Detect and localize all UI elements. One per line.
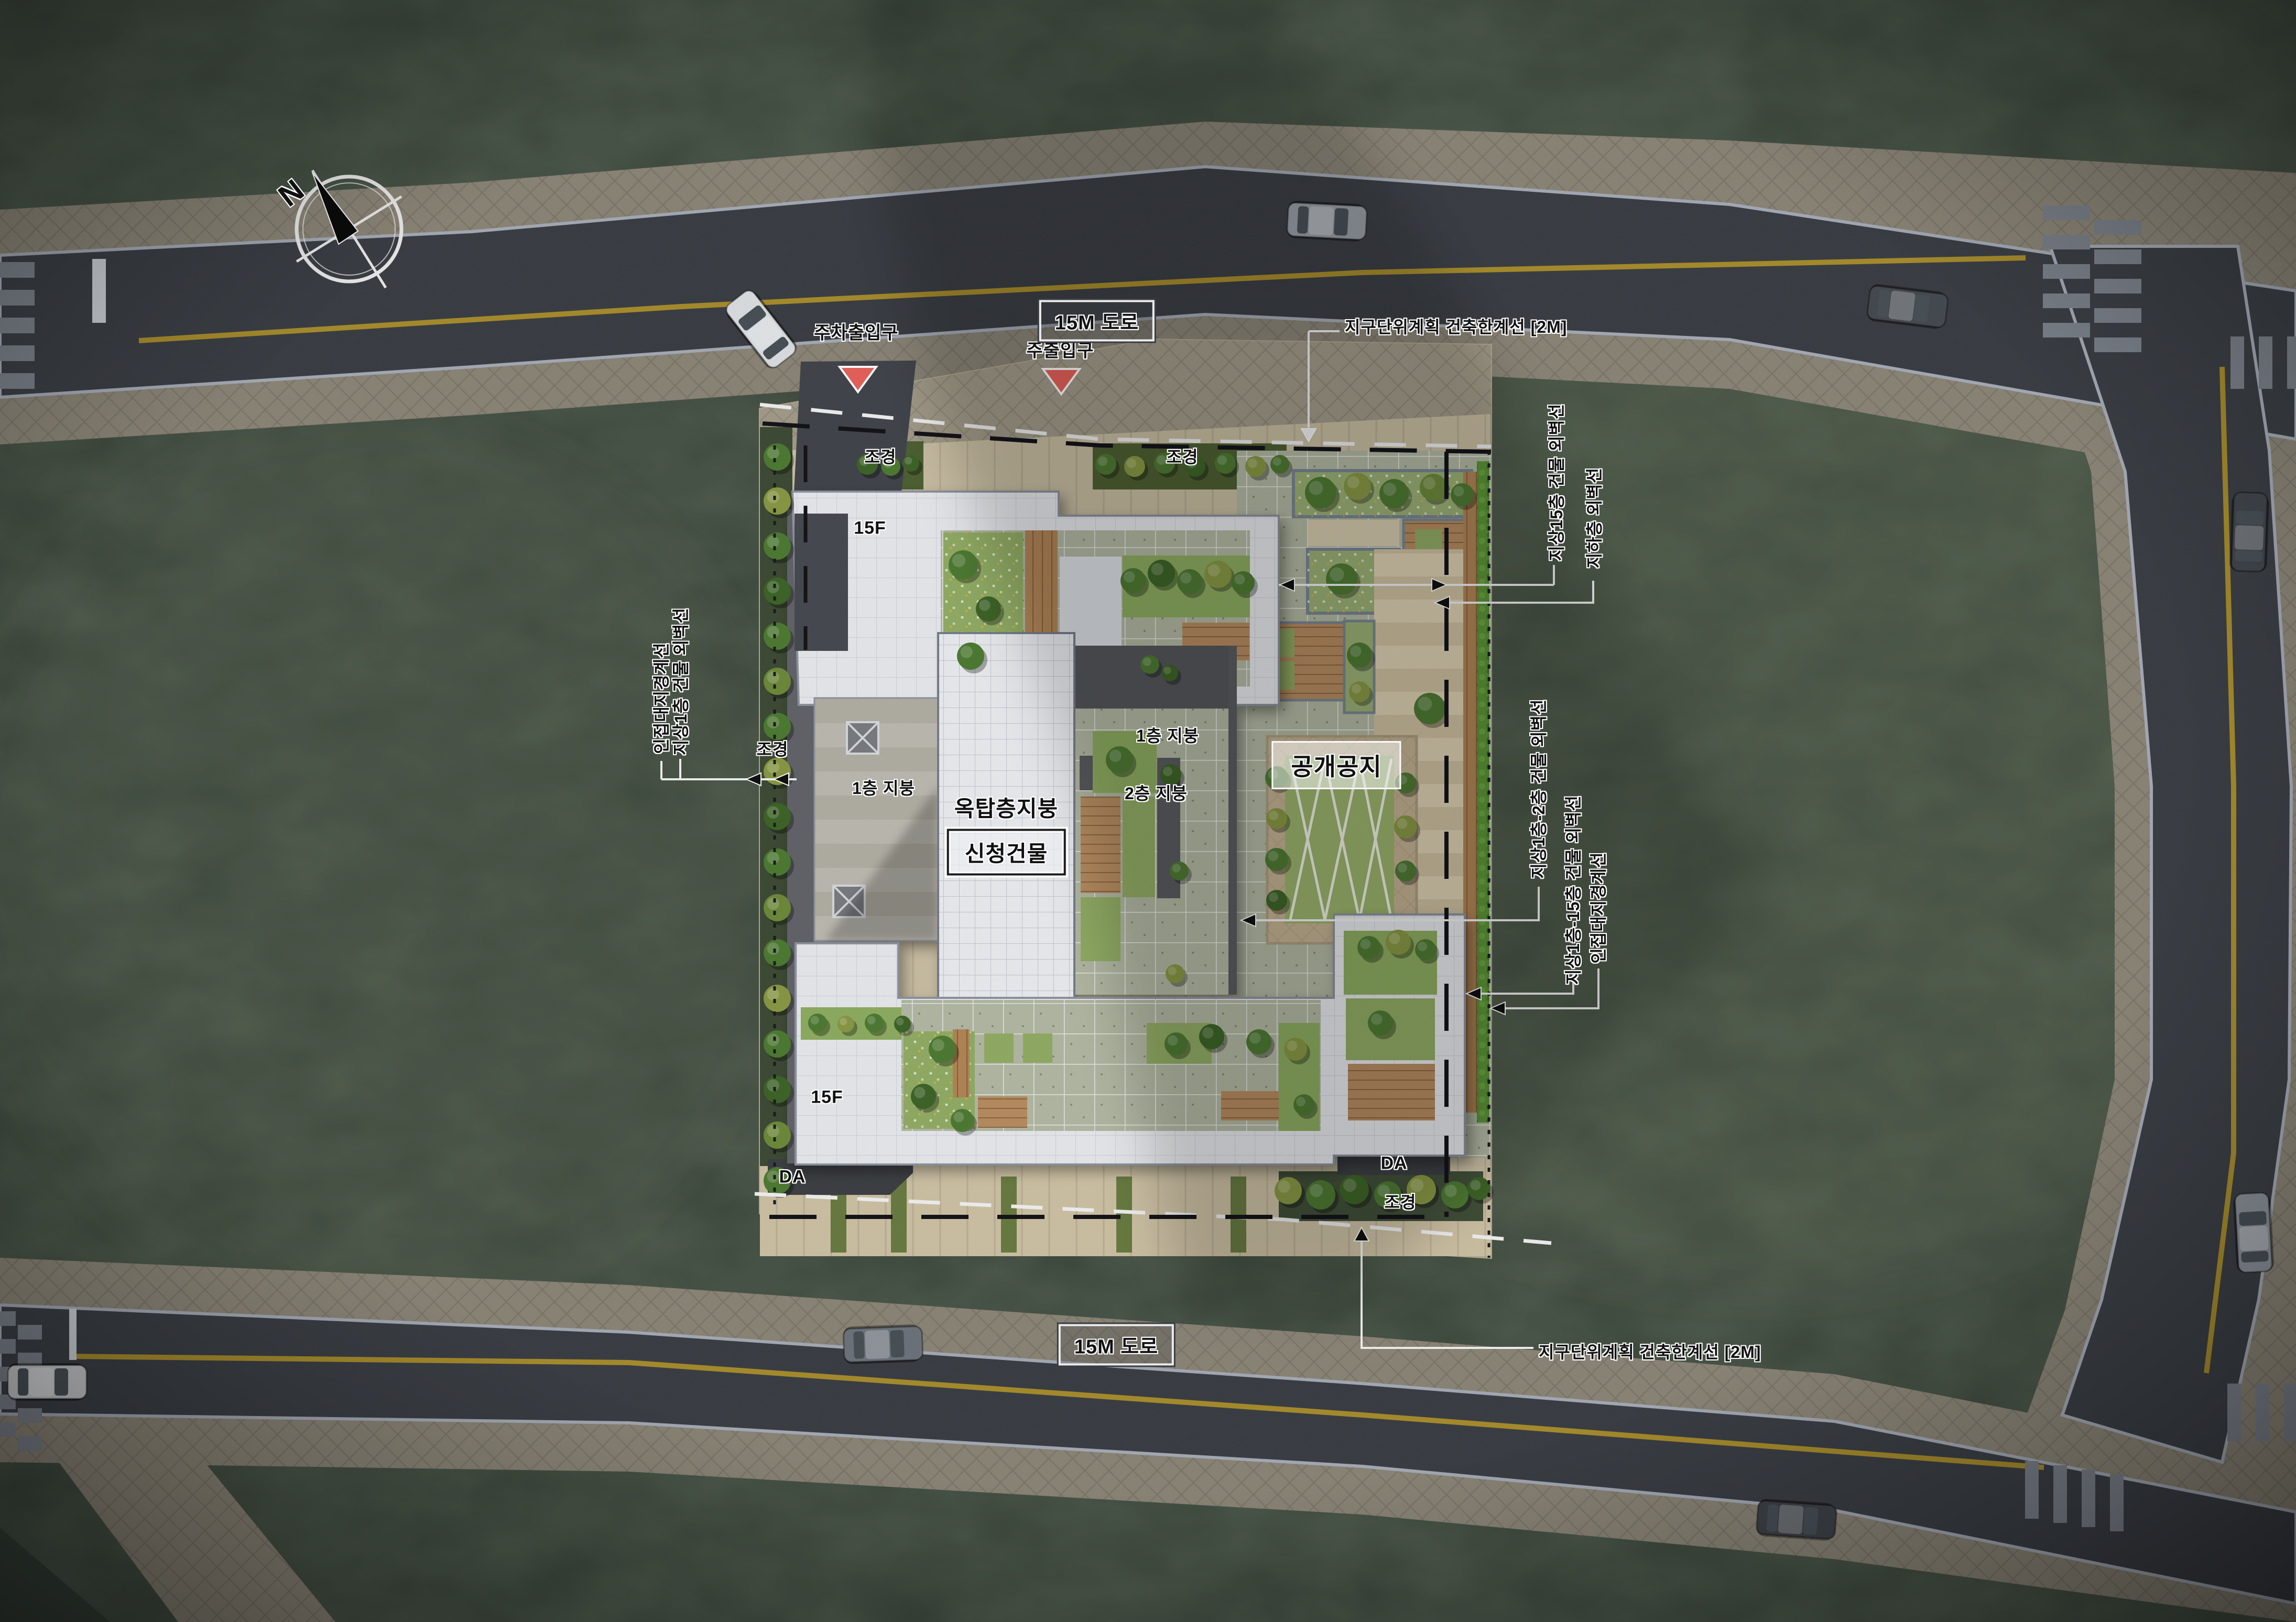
driveway-label-west: DA [779, 1167, 806, 1188]
applied-building-label: 신청건물 [947, 829, 1066, 876]
floors-label-south: 15F [811, 1087, 843, 1108]
public-open-space-label: 공개공지 [1271, 741, 1401, 789]
road-label-top: 15M 도로 [1039, 300, 1155, 342]
site-plan: N 주차출입구 주출입구 15M 도로 15M 도로 지구단위계획 건축한계선 … [0, 0, 2296, 1622]
rooftop-roof-label: 옥탑층지붕 [954, 791, 1058, 823]
parking-entrance-label: 주차출입구 [814, 319, 898, 344]
landscape-label-west: 조경 [757, 736, 789, 760]
lot-boundary-label-right: 인접대지경계선 [1585, 852, 1609, 963]
landscape-label-top-1: 조경 [865, 444, 897, 468]
landscape-label-south: 조경 [1385, 1189, 1417, 1213]
road-label-bottom: 15M 도로 [1059, 1324, 1174, 1366]
limit-line-label-top: 지구단위계획 건축한계선 [2M] [1345, 314, 1567, 338]
landscape-label-top-2: 조경 [1167, 444, 1199, 468]
site-plan-canvas [0, 0, 2296, 1622]
lighting [0, 0, 2296, 1622]
limit-line-label-bottom: 지구단위계획 건축한계선 [2M] [1539, 1339, 1761, 1363]
roof-1f-label-center: 1층 지붕 [1136, 723, 1199, 747]
wall-f1-label: 지상1층 건물 외벽선 [668, 607, 692, 755]
driveway-label-east: DA [1380, 1153, 1407, 1174]
wall-15f-label: 지상15층 건물 외벽선 [1543, 404, 1568, 561]
floors-label-north: 15F [854, 518, 886, 539]
wall-f1-f15-label: 지상1층-15층 건물 외벽선 [1560, 795, 1584, 985]
wall-basement-label: 지하층 외벽선 [1581, 467, 1605, 569]
wall-f1-f2-label: 지상1층-2층 건물 외벽선 [1526, 699, 1550, 879]
roof-2f-label: 2층 지붕 [1125, 780, 1188, 804]
roof-1f-label-west: 1층 지붕 [852, 775, 915, 799]
